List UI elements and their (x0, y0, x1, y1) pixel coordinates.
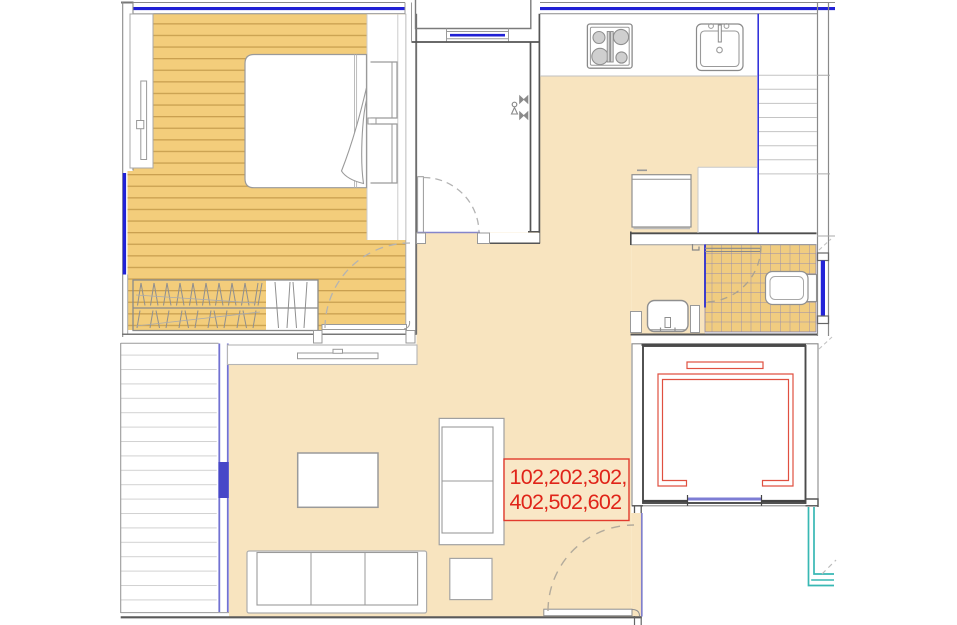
svg-text:402,502,602: 402,502,602 (510, 490, 622, 514)
svg-text:102,202,302,: 102,202,302, (510, 465, 627, 489)
